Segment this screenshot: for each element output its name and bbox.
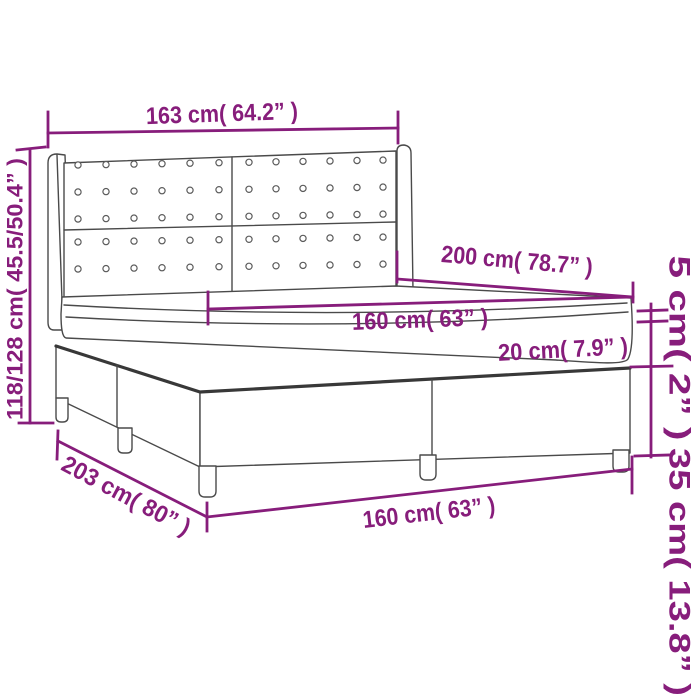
tuft-button	[354, 211, 360, 217]
tuft-button	[216, 160, 222, 166]
dim-total-length-label: 203 cm( 80” )	[57, 451, 195, 542]
bed-dimension-diagram: 163 cm( 64.2” ) 118/128 cm( 45.5/50.4” )…	[0, 0, 700, 700]
headboard-right-wing	[397, 145, 413, 291]
tuft-button	[246, 263, 252, 269]
tuft-button	[216, 264, 222, 270]
tuft-button	[246, 213, 252, 219]
tuft-button	[75, 239, 81, 245]
tuft-button	[300, 212, 306, 218]
tuft-button	[103, 216, 109, 222]
tuft-button	[131, 265, 137, 271]
tuft-button	[75, 266, 81, 272]
leg-side-middle	[118, 428, 132, 453]
tuft-button	[380, 261, 386, 267]
leg-back-left	[56, 398, 68, 422]
dim-headboard-width-line	[48, 128, 398, 133]
dim-mattress-width-label: 160 cm( 63” )	[352, 304, 489, 336]
tuft-button	[159, 215, 165, 221]
tuft-button	[327, 158, 333, 164]
tuft-button	[380, 184, 386, 190]
tuft-button	[131, 215, 137, 221]
dim-bed-height-tick-top	[17, 147, 45, 150]
tuft-button	[327, 185, 333, 191]
tuft-button	[187, 237, 193, 243]
tuft-button	[380, 157, 386, 163]
leg-front-middle	[420, 455, 436, 480]
tuft-button	[354, 184, 360, 190]
tuft-button	[75, 216, 81, 222]
diagram-canvas: 163 cm( 64.2” ) 118/128 cm( 45.5/50.4” )…	[0, 0, 700, 700]
tuft-button	[300, 235, 306, 241]
tuft-button	[327, 262, 333, 268]
tuft-button	[216, 237, 222, 243]
dim-topper-height-label: 5 cm( 2” )	[663, 256, 696, 441]
tuft-button	[187, 187, 193, 193]
tuft-button	[187, 160, 193, 166]
tuft-button	[354, 261, 360, 267]
tuft-button	[103, 189, 109, 195]
tuft-button	[300, 262, 306, 268]
bed-drawing	[48, 145, 632, 497]
dim-box-height-label: 35 cm( 13.8” )	[663, 448, 696, 696]
tuft-button	[75, 162, 81, 168]
tuft-button	[300, 185, 306, 191]
tuft-button	[354, 234, 360, 240]
tuft-button	[273, 186, 279, 192]
tuft-button	[246, 159, 252, 165]
dim-headboard-width-label: 163 cm( 64.2” )	[146, 98, 299, 130]
tuft-button	[380, 234, 386, 240]
dim-bed-length-label: 200 cm( 78.7” )	[440, 241, 594, 281]
tuft-button	[159, 265, 165, 271]
tuft-button	[131, 188, 137, 194]
tuft-button	[187, 264, 193, 270]
tuft-button	[327, 212, 333, 218]
tuft-button	[159, 188, 165, 194]
tuft-button	[159, 238, 165, 244]
tuft-button	[216, 187, 222, 193]
leg-front-left	[199, 466, 216, 497]
tuft-button	[273, 263, 279, 269]
tuft-button	[273, 236, 279, 242]
tuft-button	[246, 186, 252, 192]
tuft-button	[103, 162, 109, 168]
tuft-button	[327, 235, 333, 241]
tuft-button	[103, 239, 109, 245]
dim-bed-height-label: 118/128 cm( 45.5/50.4” )	[3, 158, 28, 420]
tuft-button	[380, 211, 386, 217]
tuft-button	[131, 238, 137, 244]
tuft-button	[216, 214, 222, 220]
tuft-button	[354, 157, 360, 163]
tuft-button	[75, 189, 81, 195]
tuft-button	[246, 236, 252, 242]
tuft-button	[273, 213, 279, 219]
tuft-button	[159, 161, 165, 167]
tuft-button	[300, 158, 306, 164]
tuft-button	[187, 214, 193, 220]
tuft-button	[131, 161, 137, 167]
dim-total-length-tick-left	[57, 431, 58, 459]
box-front-face	[200, 368, 630, 467]
tuft-button	[273, 159, 279, 165]
tuft-button	[103, 266, 109, 272]
